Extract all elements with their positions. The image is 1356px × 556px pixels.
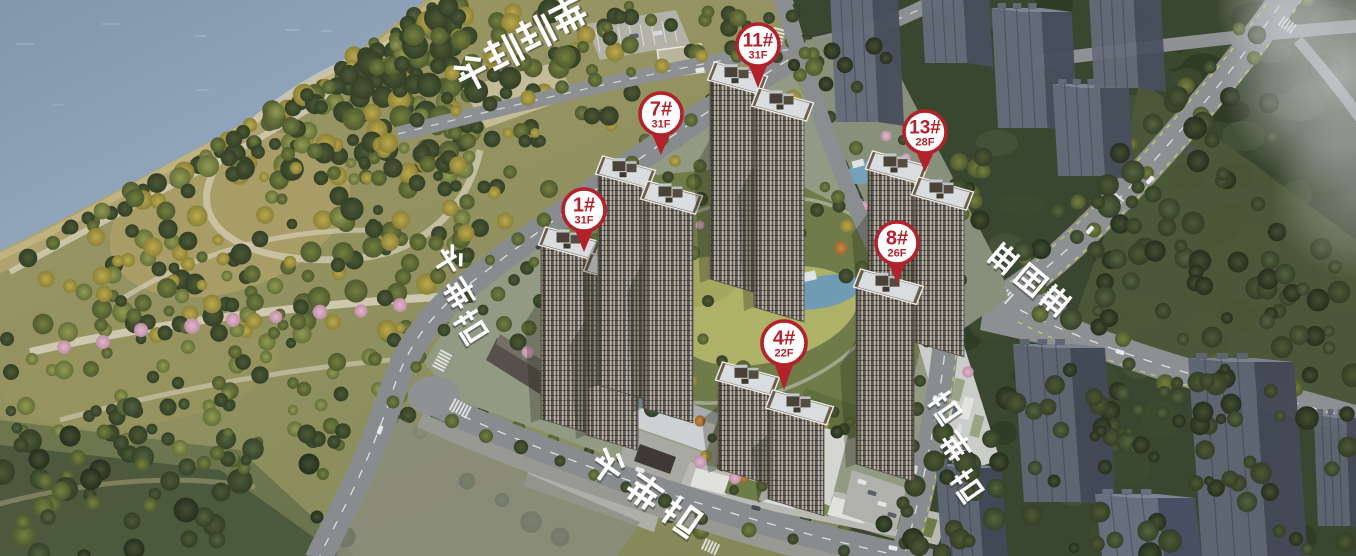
svg-text:31F: 31F bbox=[652, 119, 671, 131]
svg-text:1#: 1# bbox=[573, 195, 595, 217]
svg-text:22F: 22F bbox=[775, 348, 794, 360]
svg-text:4#: 4# bbox=[773, 328, 795, 350]
svg-text:7#: 7# bbox=[650, 99, 672, 121]
svg-text:31F: 31F bbox=[749, 50, 768, 62]
svg-text:8#: 8# bbox=[886, 228, 908, 250]
svg-text:11#: 11# bbox=[743, 31, 774, 52]
svg-text:26F: 26F bbox=[888, 248, 907, 260]
svg-text:28F: 28F bbox=[916, 137, 935, 149]
svg-text:13#: 13# bbox=[909, 118, 941, 139]
svg-text:31F: 31F bbox=[575, 215, 594, 227]
